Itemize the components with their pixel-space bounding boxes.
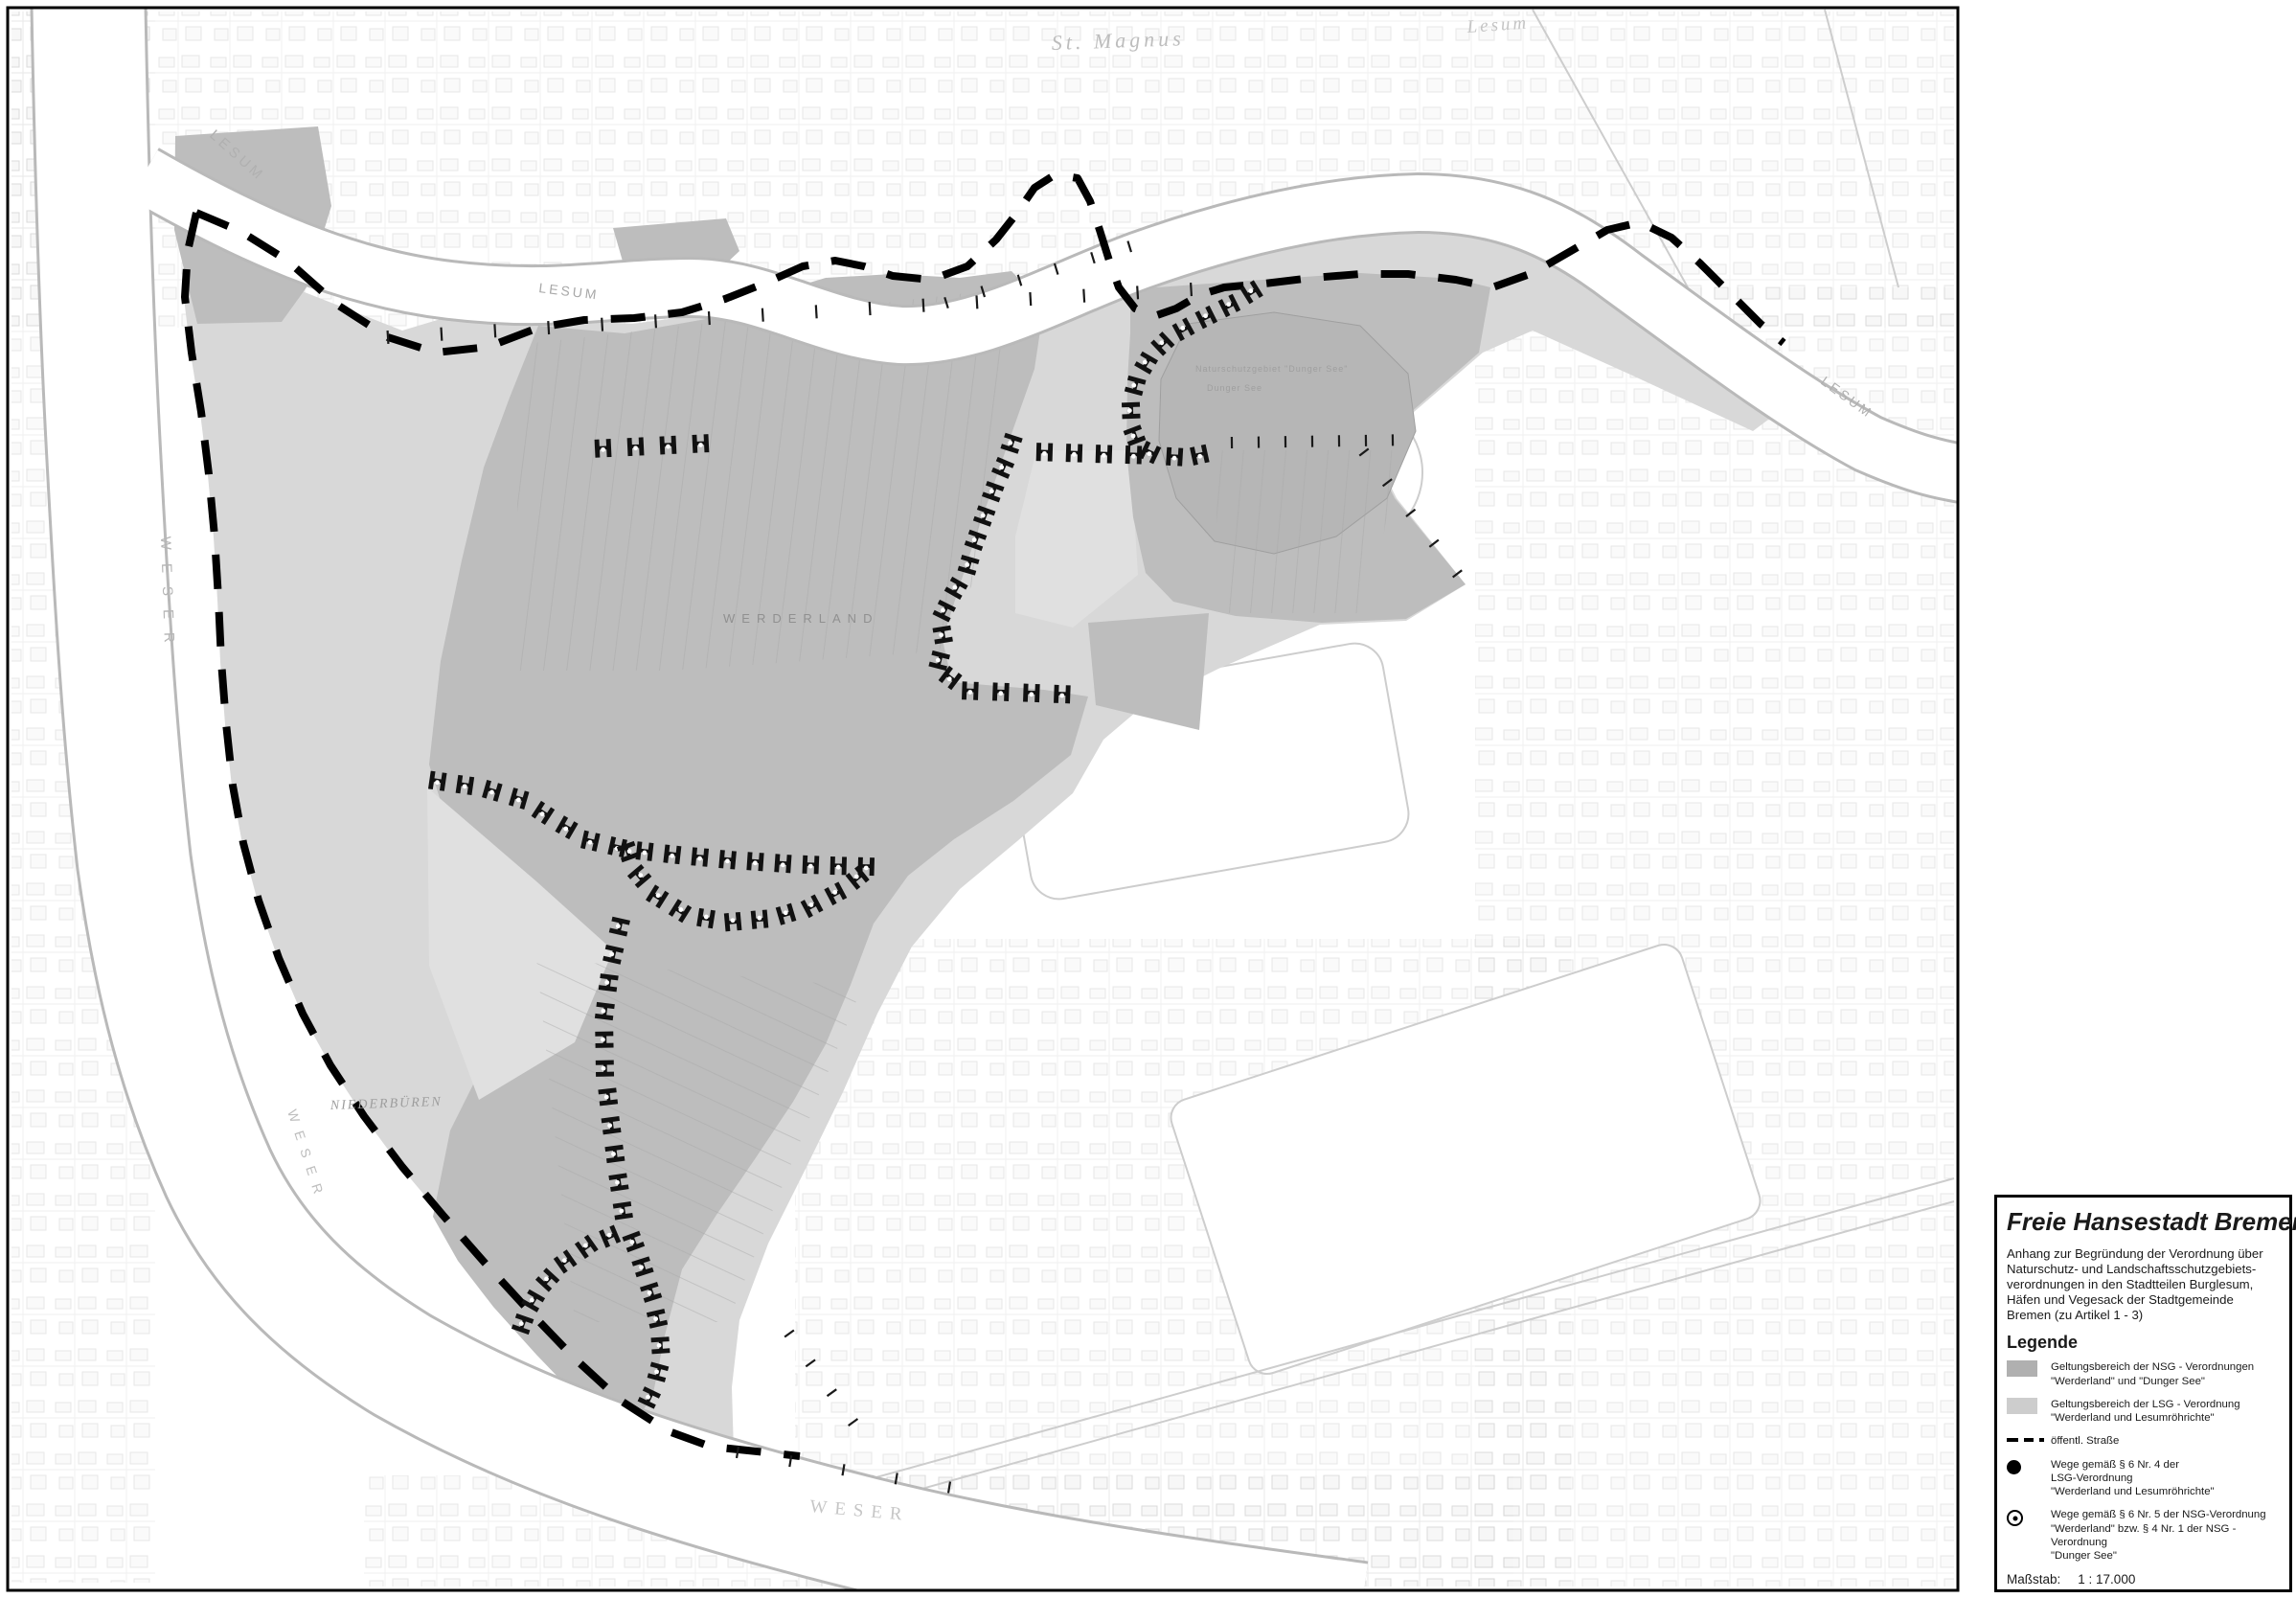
legend-item-wege-nsg-label: Wege gemäß § 6 Nr. 5 der NSG-Verordnung … [2051,1508,2282,1563]
legend-intro: Anhang zur Begründung der Verordnung übe… [2007,1246,2282,1323]
map-label: Naturschutzgebiet "Dunger See" [1195,364,1348,374]
scale-value: 1 : 17.000 [2078,1572,2135,1587]
legend-item-street-label: öffentl. Straße [2051,1434,2119,1448]
legend-item-street: öffentl. Straße [2007,1434,2282,1448]
scale-row: Maßstab: 1 : 17.000 [2007,1572,2282,1587]
map-label: St. Magnus [1051,26,1185,55]
legend-title: Freie Hansestadt Bremen [2007,1207,2282,1237]
legend-panel: Freie Hansestadt Bremen Anhang zur Begrü… [1994,1195,2292,1592]
legend-item-nsg-label: Geltungsbereich der NSG - Verordnungen "… [2051,1360,2254,1388]
legend-item-nsg: Geltungsbereich der NSG - Verordnungen "… [2007,1360,2282,1388]
circle-dot-icon [2007,1510,2023,1526]
legend-item-wege-lsg: Wege gemäß § 6 Nr. 4 der LSG-Verordnung … [2007,1458,2282,1499]
map-layers: HHHHHHHHHHHHHHHHHHHHHHHHHHHHHHHHHHHHHHHH… [0,0,2296,1598]
nsg-swatch-icon [2007,1360,2037,1377]
map-label: Dunger See [1207,383,1262,393]
map-label: WERDERLAND [723,611,878,626]
legend-item-lsg: Geltungsbereich der LSG - Verordnung "We… [2007,1398,2282,1426]
scale-label: Maßstab: [2007,1572,2060,1587]
map-document: HHHHHHHHHHHHHHHHHHHHHHHHHHHHHHHHHHHHHHHH… [0,0,2296,1598]
legend-item-wege-nsg: Wege gemäß § 6 Nr. 5 der NSG-Verordnung … [2007,1508,2282,1563]
lsg-swatch-icon [2007,1398,2037,1414]
legend-item-lsg-label: Geltungsbereich der LSG - Verordnung "We… [2051,1398,2240,1426]
legend-item-wege-lsg-label: Wege gemäß § 6 Nr. 4 der LSG-Verordnung … [2051,1458,2215,1499]
dashed-line-icon [2007,1438,2044,1442]
map-canvas: HHHHHHHHHHHHHHHHHHHHHHHHHHHHHHHHHHHHHHHH… [0,0,2296,1598]
filled-circle-icon [2007,1460,2021,1474]
legend-heading: Legende [2007,1333,2282,1353]
